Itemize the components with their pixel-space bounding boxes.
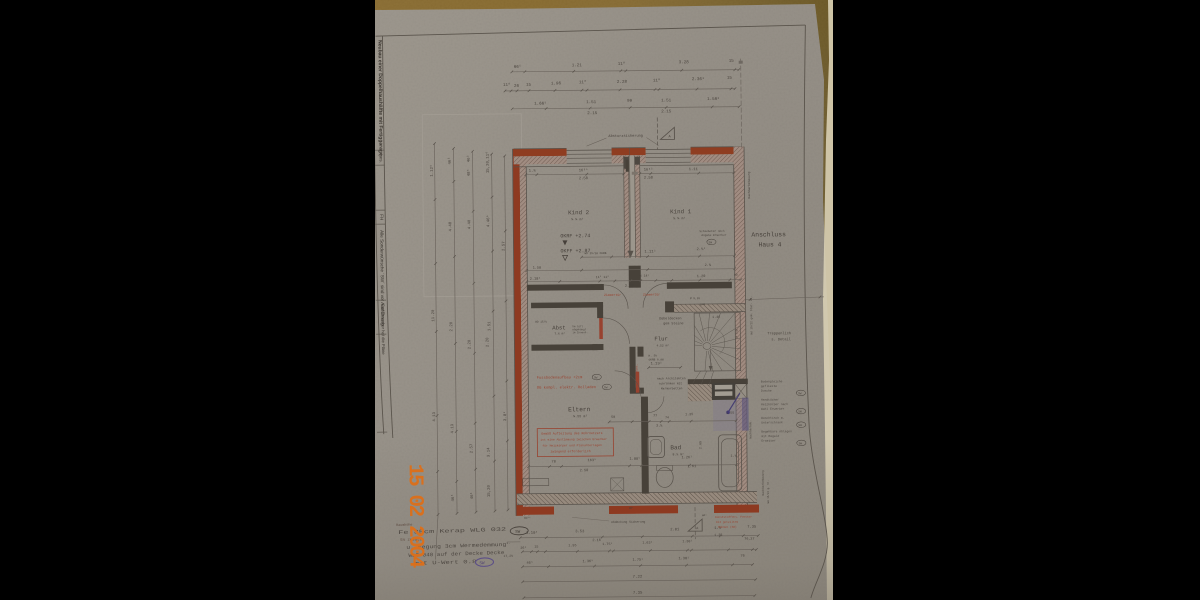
- svg-text:Unterschrank: Unterschrank: [761, 420, 783, 424]
- svg-text:Eltern: Eltern: [568, 406, 591, 413]
- svg-text:2.36¹: 2.36¹: [692, 77, 705, 82]
- svg-text:Kind 2: Kind 2: [568, 209, 589, 216]
- svg-text:OKRF +2.74: OKRF +2.74: [560, 233, 590, 239]
- svg-text:für Heizkörper und Planunterla: für Heizkörper und Planunterlagen: [542, 443, 602, 448]
- svg-text:SW: SW: [709, 241, 713, 244]
- svg-text:46⁵: 46⁵: [467, 155, 472, 162]
- svg-text:H. 5½: H. 5½: [649, 354, 658, 357]
- svg-text:2.18⁵: 2.18⁵: [530, 277, 541, 282]
- svg-text:15: 15: [727, 76, 733, 81]
- svg-text:74: 74: [665, 415, 669, 419]
- svg-text:1.12⁵: 1.12⁵: [430, 165, 435, 177]
- svg-text:99: 99: [627, 99, 633, 104]
- svg-text:mit geteiltem: mit geteiltem: [716, 520, 738, 524]
- svg-text:1.66⁵: 1.66⁵: [534, 102, 547, 107]
- svg-text:163⁵: 163⁵: [588, 458, 597, 463]
- svg-text:Kunststoffens. Fenster: Kunststoffens. Fenster: [715, 515, 752, 519]
- svg-text:1.30¹: 1.30¹: [678, 556, 689, 561]
- svg-text:2.20: 2.20: [485, 337, 490, 347]
- svg-text:Zimmertür: Zimmertür: [643, 292, 660, 296]
- svg-text:2.15: 2.15: [661, 109, 672, 114]
- svg-text:SW: SW: [798, 392, 802, 395]
- svg-text:¾ 14⁵: ¾ 14⁵: [640, 274, 650, 278]
- svg-text:11⁰ 11⁰: 11⁰ 11⁰: [596, 275, 610, 279]
- svg-text:1.11⁵: 1.11⁵: [645, 249, 656, 254]
- svg-text:zwingend erforderlich: zwingend erforderlich: [550, 449, 590, 453]
- svg-text:s. Detail: s. Detail: [771, 337, 790, 342]
- svg-text:1.56¹: 1.56¹: [707, 97, 720, 102]
- svg-text:Heizkörper nach: Heizkörper nach: [761, 402, 788, 406]
- svg-text:4.52 m²: 4.52 m²: [656, 343, 669, 347]
- svg-text:76,27: 76,27: [744, 537, 754, 542]
- svg-text:Nachbarbeb.: Nachbarbeb.: [748, 420, 752, 439]
- svg-text:SW: SW: [515, 530, 521, 535]
- svg-text:16³⁵: 16³⁵: [644, 168, 653, 173]
- svg-text:WD 15/¾: WD 15/¾: [535, 320, 547, 324]
- svg-text:mit Regale: mit Regale: [761, 434, 779, 438]
- svg-text:Handtücher: Handtücher: [761, 398, 779, 402]
- svg-text:3.14: 3.14: [486, 447, 491, 457]
- svg-text:OG kompl. elektr. Rolladen: OG kompl. elektr. Rolladen: [537, 385, 596, 391]
- svg-text:Dusche: Dusche: [761, 389, 772, 393]
- svg-text:7.22: 7.22: [633, 575, 643, 580]
- svg-text:46⁵: 46⁵: [448, 157, 453, 164]
- svg-text:SW: SW: [479, 561, 485, 566]
- svg-text:Rahmen (SW): Rahmen (SW): [718, 525, 737, 529]
- svg-text:26⁵: 26⁵: [520, 546, 526, 551]
- svg-text:1.51: 1.51: [586, 100, 597, 105]
- svg-text:4.13: 4.13: [432, 411, 437, 421]
- svg-text:¾.55 m²: ¾.55 m²: [573, 414, 587, 419]
- svg-text:Bad: Bad: [670, 444, 681, 451]
- svg-text:2.15: 2.15: [587, 111, 598, 116]
- svg-text:46¹: 46¹: [470, 492, 475, 499]
- svg-text:1.46: 1.46: [712, 315, 720, 320]
- svg-text:1.63⁵: 1.63⁵: [642, 541, 652, 546]
- svg-text:66⁵: 66⁵: [514, 65, 522, 70]
- svg-text:Der Erwerber hat die Pläne: Der Erwerber hat die Pläne: [381, 304, 386, 355]
- svg-text:Nachbarbebauung: Nachbarbebauung: [761, 470, 765, 496]
- svg-text:Marmorbetten: Marmorbetten: [661, 386, 683, 390]
- svg-text:2.20: 2.20: [449, 321, 454, 331]
- svg-text:1.58: 1.58: [533, 266, 541, 271]
- svg-text:1.75¹: 1.75¹: [632, 558, 643, 563]
- svg-text:14 Stg: 14 Stg: [735, 329, 738, 339]
- svg-text:1.96: 1.96: [551, 81, 562, 86]
- svg-text:3.53: 3.53: [575, 529, 585, 534]
- svg-text:Absturzsicherung: Absturzsicherung: [608, 134, 643, 139]
- svg-text:46⁵: 46⁵: [526, 561, 533, 566]
- svg-text:26: 26: [514, 84, 520, 89]
- svg-text:1.20: 1.20: [697, 274, 706, 279]
- svg-text:2.15: 2.15: [625, 284, 634, 289]
- svg-text:2.69: 2.69: [698, 441, 703, 449]
- svg-text:ges.: ges.: [379, 154, 384, 163]
- svg-text:1.19⁵: 1.19⁵: [651, 361, 662, 366]
- svg-text:SW: SW: [798, 424, 802, 427]
- svg-text:Abst: Abst: [552, 324, 566, 331]
- svg-text:76: 76: [740, 554, 744, 559]
- svg-text:Treppenlich: Treppenlich: [767, 331, 791, 336]
- svg-text:Schiebetür noch: Schiebetür noch: [699, 229, 725, 233]
- svg-text:2.01: 2.01: [670, 527, 680, 532]
- svg-text:¾ ¾ m²: ¾ ¾ m²: [673, 216, 685, 221]
- svg-text:1.55: 1.55: [726, 411, 734, 416]
- svg-text:Flur: Flur: [654, 335, 668, 342]
- svg-text:Erweiter: Erweiter: [761, 439, 776, 443]
- svg-text:50: 50: [611, 415, 615, 420]
- svg-text:1.¾: 1.¾: [529, 169, 537, 174]
- svg-text:1.21: 1.21: [572, 63, 583, 68]
- svg-text:2.20: 2.20: [467, 339, 472, 349]
- svg-text:15: 15: [526, 83, 532, 88]
- svg-text:7.¾ m²: 7.¾ m²: [554, 331, 565, 335]
- svg-text:Waschtisch m.: Waschtisch m.: [761, 416, 785, 420]
- svg-text:15: 15: [729, 59, 735, 64]
- svg-text:OKRB 0.88: OKRB 0.88: [649, 358, 664, 361]
- svg-text:77: 77: [653, 413, 657, 418]
- svg-text:4.13: 4.13: [450, 423, 455, 433]
- svg-text:gem: gem: [700, 303, 705, 306]
- svg-text:FH: FH: [379, 214, 384, 220]
- svg-text:Nachbarbebauung: Nachbarbebauung: [747, 171, 751, 198]
- svg-text:4.40: 4.40: [467, 219, 472, 229]
- svg-text:gem Steine: gem Steine: [663, 321, 683, 326]
- svg-text:1.: 1.: [506, 541, 510, 545]
- svg-text:Wd¹: Wd¹: [702, 514, 707, 517]
- svg-text:2.¾⁵: 2.¾⁵: [696, 247, 705, 252]
- svg-text:Schiebet.: Schiebet.: [635, 363, 639, 379]
- svg-text:70: 70: [552, 459, 556, 464]
- svg-text:Ø 5,26: Ø 5,26: [690, 297, 700, 300]
- svg-text:Bodengleiche: Bodengleiche: [761, 379, 783, 383]
- svg-text:16³⁵: 16³⁵: [579, 168, 588, 173]
- svg-text:1.25: 1.25: [714, 533, 722, 538]
- svg-text:1.75¹: 1.75¹: [602, 542, 612, 547]
- svg-text:Angabe Erwerber: Angabe Erwerber: [701, 233, 727, 237]
- svg-text:1.30¹: 1.30¹: [682, 539, 692, 544]
- svg-text:1.11: 1.11: [689, 167, 699, 172]
- svg-text:15 02 2004: 15 02 2004: [403, 464, 427, 568]
- svg-text:schränken mit: schränken mit: [659, 381, 683, 385]
- svg-text:7.35: 7.35: [633, 591, 643, 596]
- svg-text:Fussbodenaufbau +2cm: Fussbodenaufbau +2cm: [537, 375, 583, 380]
- svg-text:SW: SW: [798, 410, 802, 413]
- svg-text:1.36⁵: 1.36⁵: [582, 559, 593, 564]
- svg-text:17,2¾: 17,2¾: [503, 554, 513, 558]
- svg-text:Wd 15/22 gem. Stat. 25,: Wd 15/22 gem. Stat. 25,: [749, 296, 753, 335]
- svg-text:SW: SW: [594, 376, 598, 379]
- svg-text:1.¾: 1.¾: [730, 454, 737, 459]
- svg-text:2.¾: 2.¾: [705, 263, 712, 268]
- svg-text:48⁵: 48⁵: [467, 169, 472, 176]
- svg-text:1.61: 1.61: [688, 464, 697, 469]
- svg-text:2.15: 2.15: [586, 284, 595, 289]
- svg-text:geflieste: geflieste: [761, 384, 777, 388]
- svg-text:Zimmertür: Zimmertür: [604, 293, 621, 297]
- svg-text:1.95: 1.95: [568, 543, 576, 548]
- svg-text:1.88⁵: 1.88⁵: [630, 457, 641, 462]
- svg-text:Wd¹: Wd¹: [629, 507, 634, 510]
- svg-text:OKFF +2.87: OKFF +2.87: [561, 248, 591, 254]
- svg-text:46⁵: 46⁵: [451, 494, 456, 501]
- svg-text:im Innenb.: im Innenb.: [572, 331, 588, 334]
- svg-text:2.28: 2.28: [617, 80, 628, 85]
- svg-text:4.48: 4.48: [448, 221, 453, 231]
- svg-text:2.57: 2.57: [501, 241, 506, 251]
- svg-text:Gemäß Aufteilung des Rohrnetze: Gemäß Aufteilung des Rohrnetzers: [541, 431, 602, 436]
- svg-text:Kind 1: Kind 1: [670, 208, 691, 215]
- svg-text:7.35: 7.35: [747, 525, 757, 530]
- svg-text:Wd¹¹: Wd¹¹: [524, 516, 531, 520]
- svg-text:15: 15: [534, 545, 538, 550]
- svg-text:1.51: 1.51: [487, 321, 492, 331]
- svg-text:40: 40: [734, 273, 738, 277]
- svg-text:SW: SW: [799, 442, 803, 445]
- svg-text:2.58: 2.58: [580, 468, 589, 473]
- svg-text:2.58: 2.58: [579, 176, 589, 181]
- svg-text:2.58: 2.58: [644, 176, 654, 181]
- svg-text:2.¾: 2.¾: [656, 423, 663, 428]
- svg-text:Haus 4: Haus 4: [758, 241, 781, 248]
- svg-text:2.57: 2.57: [469, 443, 474, 453]
- svg-text:15,20: 15,20: [487, 484, 492, 497]
- svg-text:Wd 15/22 g. St.: Wd 15/22 g. St.: [767, 480, 770, 503]
- svg-text:Begehbare Ablagen: Begehbare Ablagen: [761, 429, 792, 433]
- svg-text:SW: SW: [604, 386, 608, 389]
- svg-text:1.35: 1.35: [685, 412, 693, 417]
- svg-text:2.16: 2.16: [592, 538, 601, 543]
- svg-text:Neubau einer Doppelhaushälfte: Neubau einer Doppelhaushälfte mit Fertig…: [376, 40, 383, 156]
- svg-text:¾ ¾ m²: ¾ ¾ m²: [571, 217, 583, 222]
- svg-text:Anschluss: Anschluss: [751, 231, 786, 238]
- svg-text:11.20: 11.20: [431, 309, 436, 322]
- svg-text:15,20,11⁰: 15,20,11⁰: [486, 151, 491, 173]
- svg-text:8.¾ m²: 8.¾ m²: [672, 452, 684, 456]
- svg-text:Wahl Erwerber: Wahl Erwerber: [761, 407, 785, 411]
- svg-text:ist eine Abstimmung zwischen E: ist eine Abstimmung zwischen Erwerber: [540, 437, 607, 442]
- svg-text:1.51: 1.51: [661, 98, 672, 103]
- svg-text:Abdeckung Sicherung: Abdeckung Sicherung: [611, 520, 645, 524]
- svg-text:3.8⁵: 3.8⁵: [503, 411, 508, 421]
- svg-text:Dübeldecken: Dübeldecken: [659, 316, 681, 321]
- svg-text:4.46⁵: 4.46⁵: [486, 215, 491, 227]
- svg-text:nach Architekten: nach Architekten: [657, 376, 686, 380]
- svg-text:3.28: 3.28: [679, 60, 690, 65]
